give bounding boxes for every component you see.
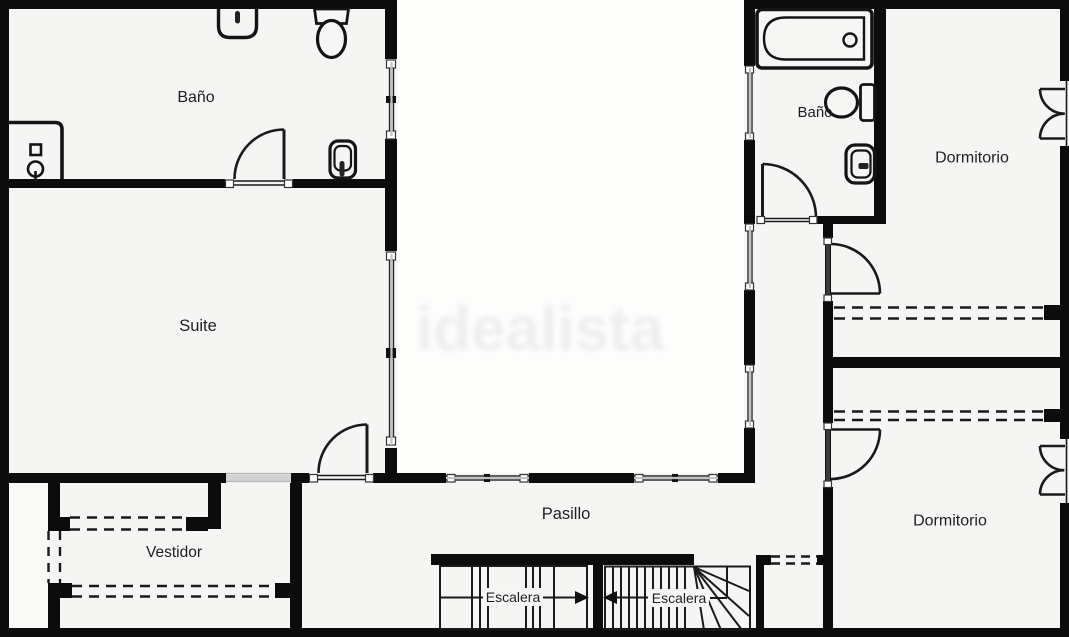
svg-text:Baño: Baño <box>177 89 214 106</box>
svg-text:Escalera: Escalera <box>486 589 541 605</box>
svg-text:idealista: idealista <box>416 295 665 364</box>
svg-text:Vestidor: Vestidor <box>146 544 202 561</box>
svg-text:Suite: Suite <box>179 317 217 335</box>
svg-text:Dormitorio: Dormitorio <box>935 150 1009 167</box>
svg-text:Pasillo: Pasillo <box>542 505 591 523</box>
svg-text:Baño: Baño <box>797 104 832 121</box>
svg-text:Escalera: Escalera <box>652 590 707 606</box>
svg-text:Dormitorio: Dormitorio <box>913 513 987 530</box>
